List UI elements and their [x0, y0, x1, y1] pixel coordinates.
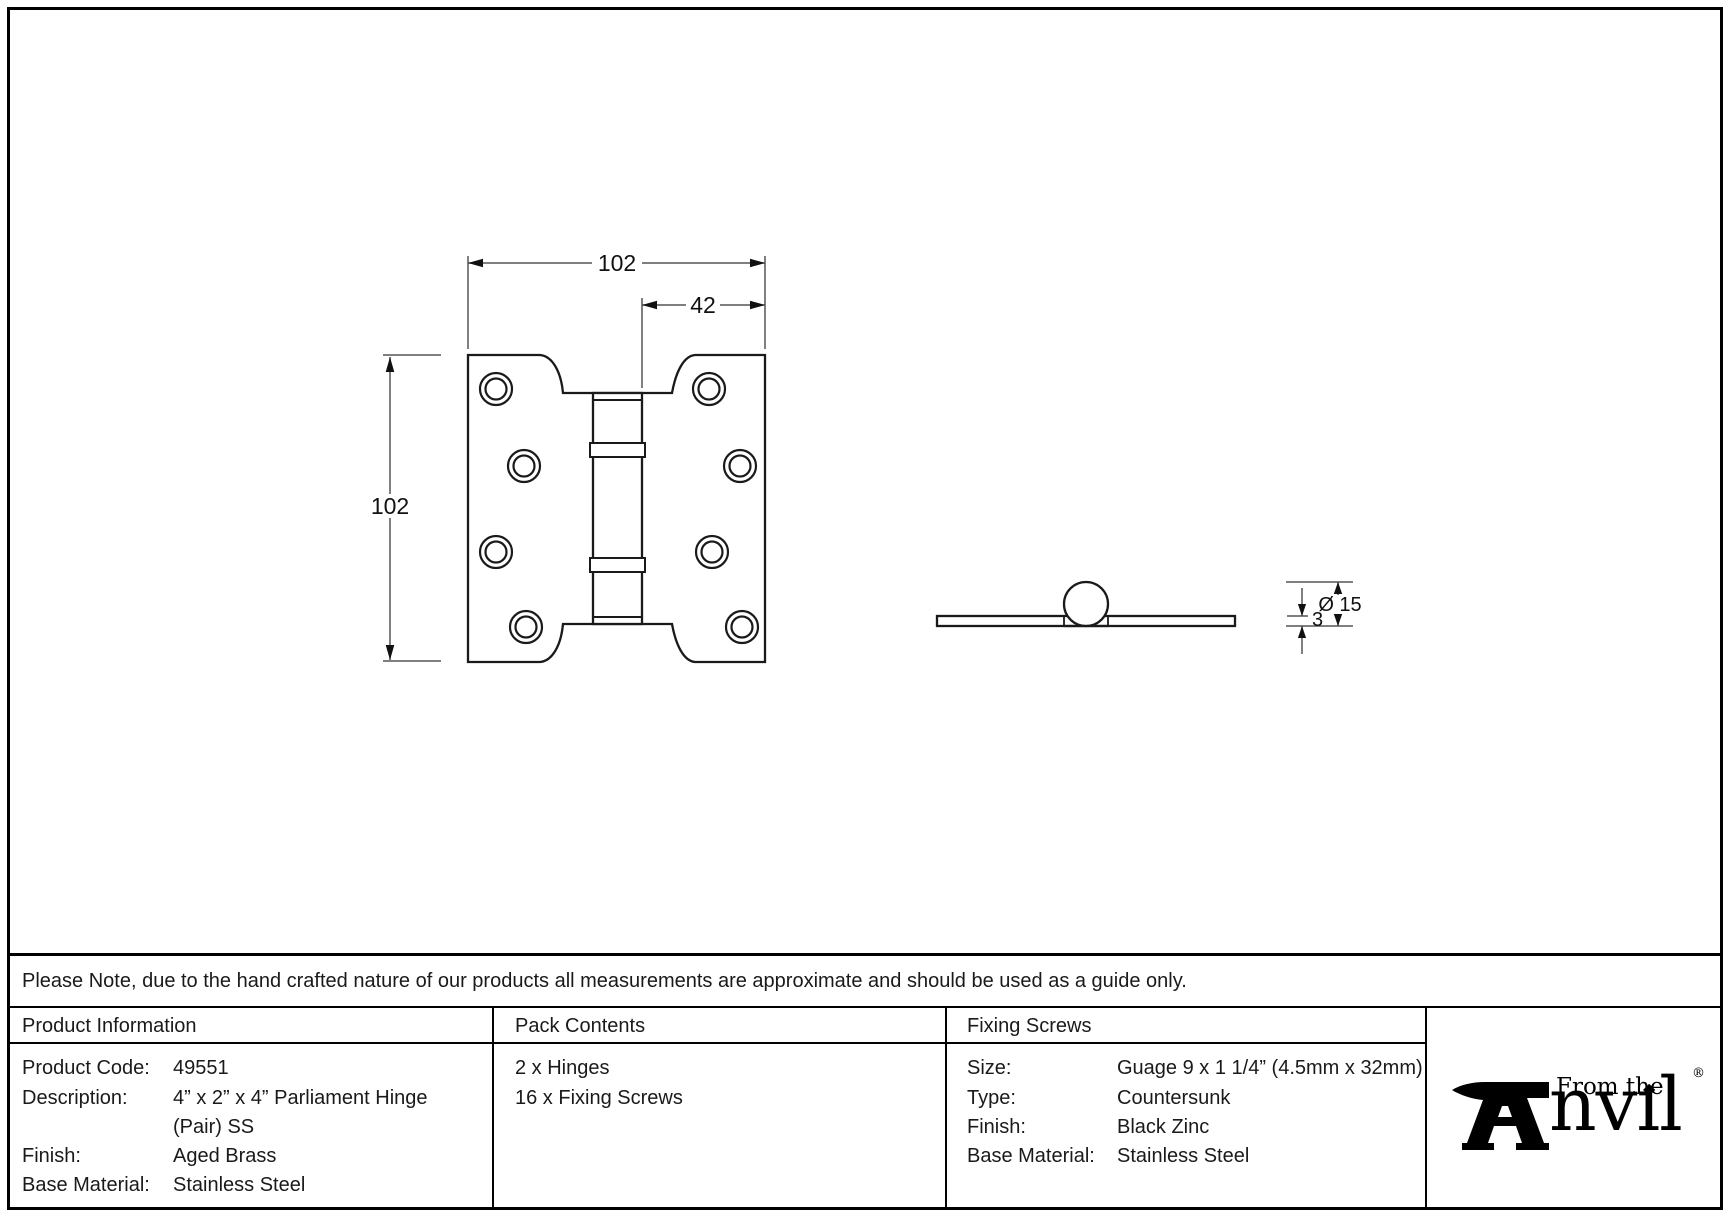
- divider-col-2: [945, 1006, 947, 1208]
- side-view-dimensions: Ø 15 3: [1286, 582, 1362, 654]
- screw-holes-left: [480, 373, 542, 643]
- table-header-rule: [7, 1042, 1426, 1044]
- screw-base-material-label: Base Material:: [967, 1143, 1095, 1169]
- from-the-anvil-logo: nvıl From the ◆ ®: [1452, 1066, 1720, 1152]
- finish-label: Finish:: [22, 1143, 81, 1169]
- fixing-screws-header: Fixing Screws: [967, 1013, 1091, 1039]
- product-code-value: 49551: [173, 1055, 229, 1081]
- description-label: Description:: [22, 1085, 128, 1111]
- screw-base-material-value: Stainless Steel: [1117, 1143, 1249, 1169]
- description-value: 4” x 2” x 4” Parliament Hinge: [173, 1085, 428, 1111]
- logo-diamond-icon: ◆: [1643, 1079, 1655, 1099]
- screw-size-label: Size:: [967, 1055, 1011, 1081]
- knuckle-profile: [1064, 582, 1108, 626]
- screw-finish-label: Finish:: [967, 1114, 1026, 1140]
- technical-drawing: 102 42 102: [0, 0, 1730, 950]
- knuckle-barrel: [593, 393, 642, 624]
- pack-item-screws: 16 x Fixing Screws: [515, 1085, 683, 1111]
- table-top-rule: [7, 1006, 1723, 1008]
- note-top-rule: [7, 953, 1723, 956]
- finish-value: Aged Brass: [173, 1143, 276, 1169]
- product-spec-sheet: 102 42 102: [0, 0, 1730, 1217]
- product-code-label: Product Code:: [22, 1055, 150, 1081]
- pack-contents-header: Pack Contents: [515, 1013, 645, 1039]
- dim-diameter-label: Ø 15: [1318, 594, 1361, 616]
- product-information-header: Product Information: [22, 1013, 197, 1039]
- dim-height-label: 102: [371, 493, 409, 519]
- divider-col-3: [1425, 1006, 1427, 1208]
- hinge-side-view: [937, 582, 1235, 626]
- measurement-note: Please Note, due to the hand crafted nat…: [22, 968, 1187, 994]
- anvil-icon: [1452, 1070, 1552, 1150]
- registered-trademark-icon: ®: [1692, 1066, 1705, 1081]
- hinge-front-view: [468, 355, 765, 662]
- description-value-line2: (Pair) SS: [173, 1114, 254, 1140]
- base-material-label: Base Material:: [22, 1172, 150, 1198]
- screw-type-label: Type:: [967, 1085, 1016, 1111]
- screw-type-value: Countersunk: [1117, 1085, 1230, 1111]
- base-material-value: Stainless Steel: [173, 1172, 305, 1198]
- front-view-dimensions: 102 42 102: [366, 250, 765, 661]
- divider-col-1: [492, 1006, 494, 1208]
- screw-holes-right: [693, 373, 758, 643]
- dim-thickness-label: 3: [1312, 609, 1323, 631]
- knuckle-bearing-top: [590, 443, 645, 457]
- pack-item-hinges: 2 x Hinges: [515, 1055, 610, 1081]
- screw-finish-value: Black Zinc: [1117, 1114, 1209, 1140]
- knuckle-bearing-bottom: [590, 558, 645, 572]
- screw-size-value: Guage 9 x 1 1/4” (4.5mm x 32mm): [1117, 1055, 1423, 1081]
- dim-offset-label: 42: [690, 292, 716, 318]
- dim-width-label: 102: [598, 250, 636, 276]
